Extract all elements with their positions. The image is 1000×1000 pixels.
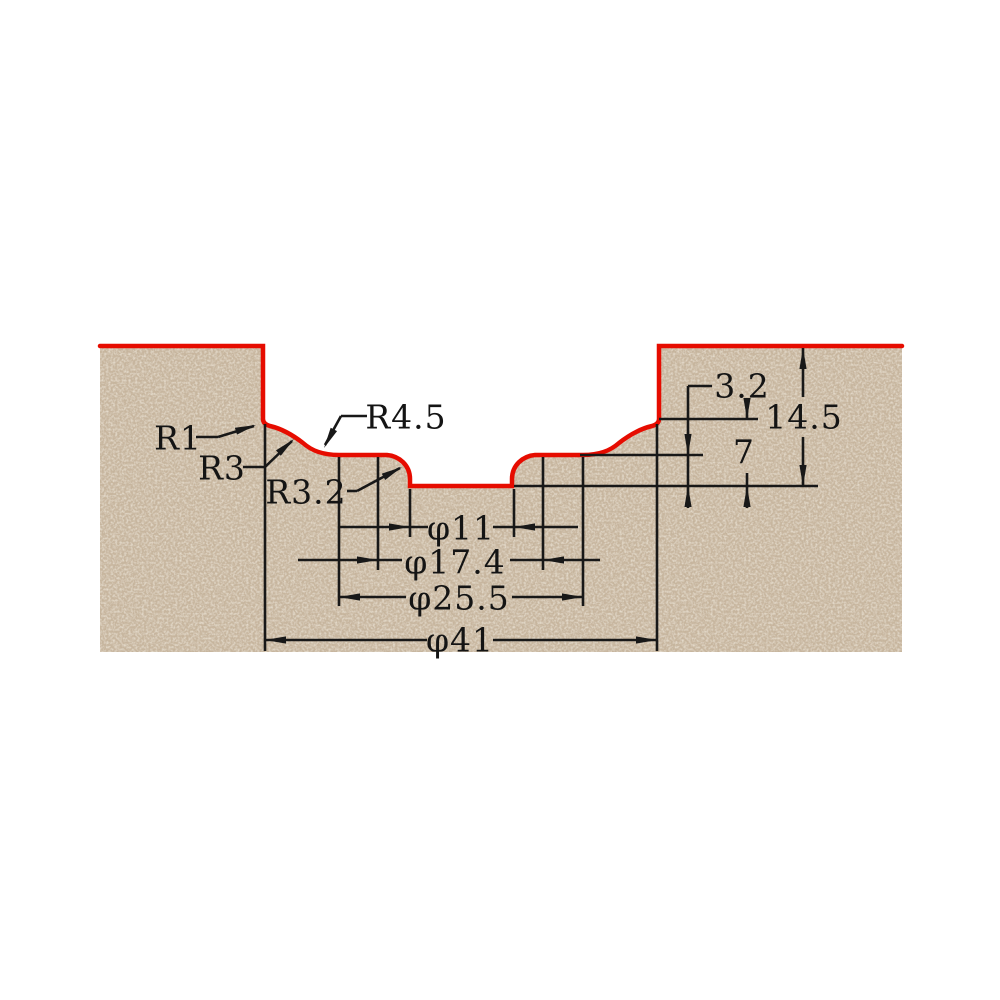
diameter-label-phi17-4: φ17.4 xyxy=(404,543,506,582)
technical-drawing: R1 R3 R3.2 R4.5 φ11 φ17.4 φ25.5 φ41 3.2 … xyxy=(0,0,1000,1000)
depth-label-14-5: 14.5 xyxy=(765,398,842,437)
diameter-label-phi41: φ41 xyxy=(426,621,494,660)
radius-label-r1: R1 xyxy=(154,419,202,458)
radius-label-r3-2: R3.2 xyxy=(265,473,346,512)
depth-label-7: 7 xyxy=(733,433,755,472)
radius-label-r3: R3 xyxy=(198,449,246,488)
radius-label-r4-5: R4.5 xyxy=(365,398,446,437)
diameter-label-phi25-5: φ25.5 xyxy=(408,579,510,618)
drawing-canvas: R1 R3 R3.2 R4.5 φ11 φ17.4 φ25.5 φ41 3.2 … xyxy=(0,0,1000,1000)
depth-label-3-2: 3.2 xyxy=(714,367,769,406)
